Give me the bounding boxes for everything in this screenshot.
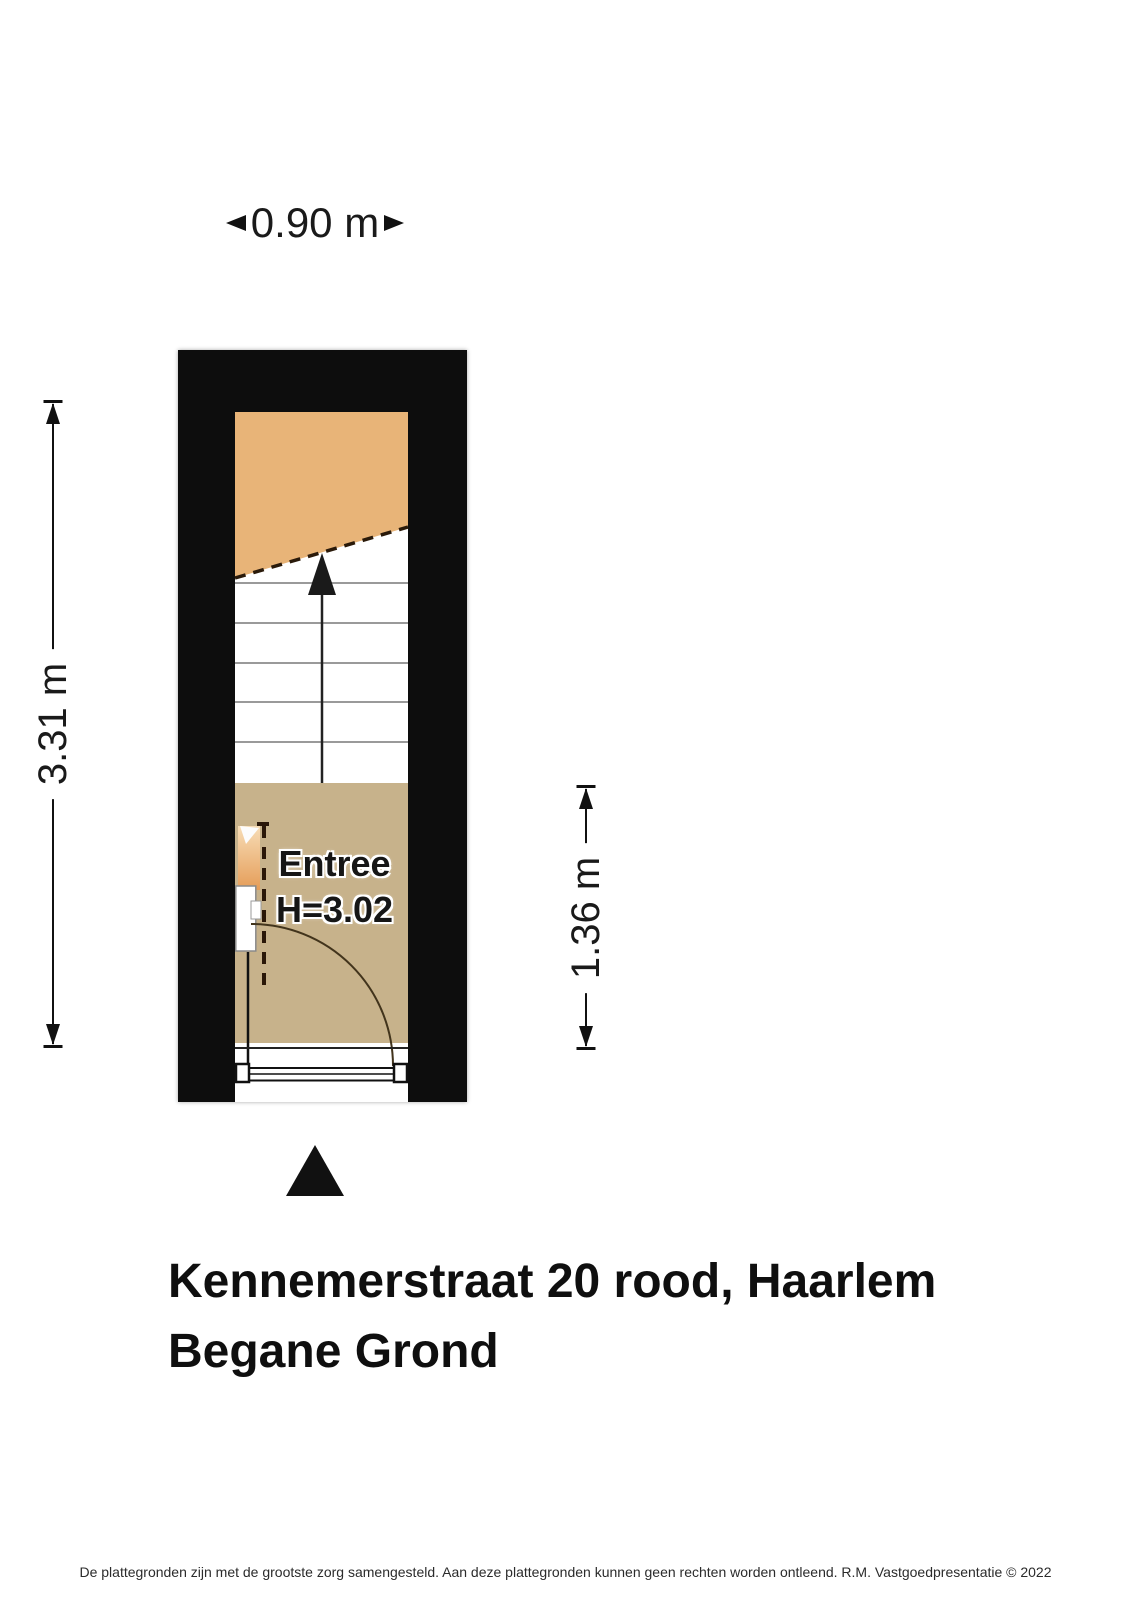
plan-title-address: Kennemerstraat 20 rood, Haarlem (168, 1247, 936, 1317)
plan-title-floor: Begane Grond (168, 1317, 936, 1387)
dimension-end-bar (577, 1047, 596, 1050)
arrow-down-icon (579, 1026, 593, 1047)
floorplan-page: 0.90 m 3.31 m 1.36 m (0, 0, 1131, 1600)
plan-title: Kennemerstraat 20 rood, Haarlem Begane G… (168, 1247, 936, 1386)
dimension-height-total: 3.31 m (33, 400, 73, 1048)
plan-drawing (235, 412, 408, 1102)
dimension-width: 0.90 m (222, 200, 408, 246)
room-name: Entree (261, 844, 408, 884)
dimension-width-label: 0.90 m (251, 202, 379, 244)
stair-landing-area (235, 412, 408, 578)
dimension-height-entree-label: 1.36 m (566, 842, 606, 992)
dimension-end-bar (44, 1045, 63, 1048)
door-post-right (394, 1064, 407, 1082)
entrance-door-slab (249, 1068, 394, 1081)
door-post-left (236, 1064, 249, 1082)
dimension-height-total-label: 3.31 m (33, 649, 73, 799)
dimension-height-entree: 1.36 m (566, 785, 606, 1050)
room-label-block: Entree H=3.02 (235, 844, 408, 929)
entrance-marker-triangle-icon (286, 1145, 344, 1196)
arrow-right-icon (384, 215, 404, 231)
plan-interior: Entree H=3.02 (235, 412, 408, 1102)
stair-up-arrow-icon (308, 553, 336, 595)
disclaimer-text: De plattegronden zijn met de grootste zo… (0, 1564, 1131, 1580)
arrow-down-icon (46, 1024, 60, 1045)
room-ceiling-height: H=3.02 (261, 890, 408, 930)
arrow-left-icon (226, 215, 246, 231)
